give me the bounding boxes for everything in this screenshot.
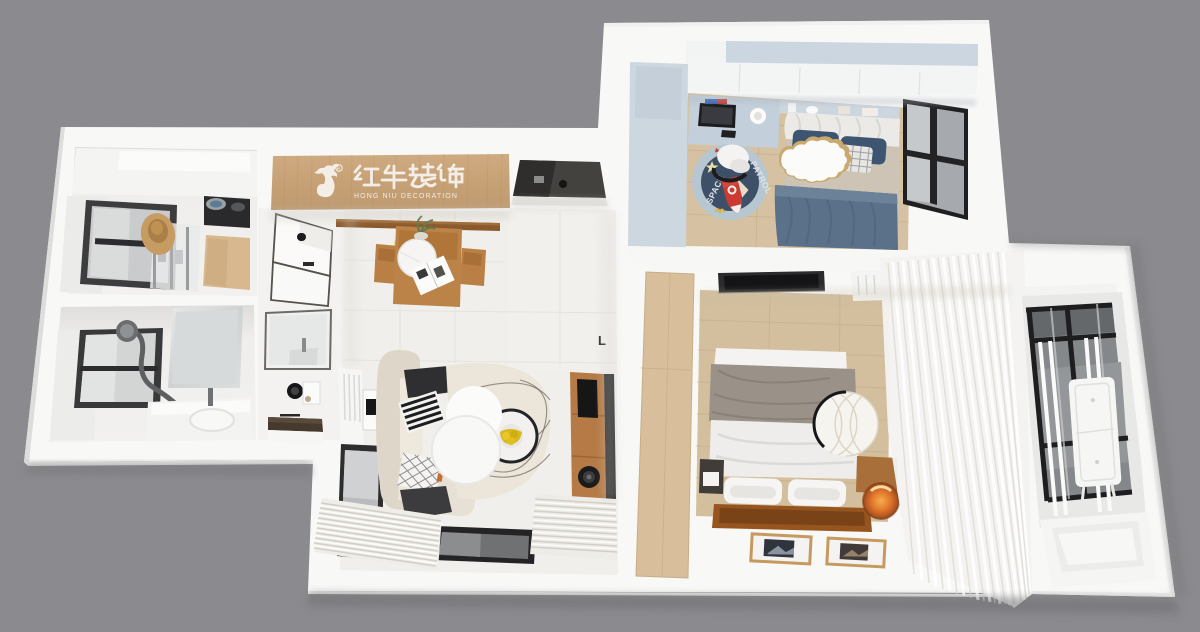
- svg-text:R: R: [337, 167, 341, 173]
- svg-text:HONG NIU DECORATION: HONG NIU DECORATION: [354, 193, 458, 200]
